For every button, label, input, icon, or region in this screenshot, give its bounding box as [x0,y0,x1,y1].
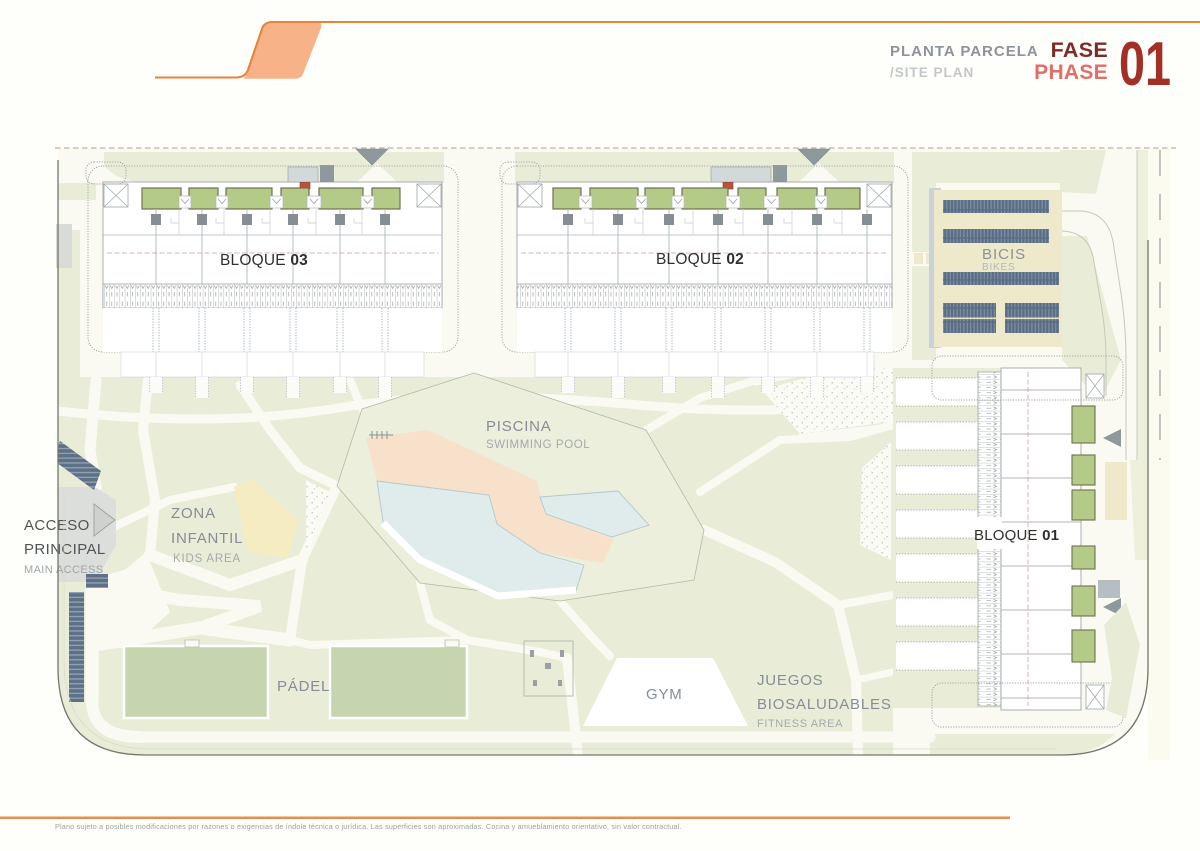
svg-text:PHASE: PHASE [1034,61,1108,84]
svg-text:KIDS AREA: KIDS AREA [173,553,241,565]
svg-text:ZONA: ZONA [171,505,216,522]
svg-text:BIOSALUDABLES: BIOSALUDABLES [757,696,892,713]
svg-text:GYM: GYM [646,686,683,703]
svg-text:FASE: FASE [1051,38,1108,62]
svg-text:BLOQUE 03: BLOQUE 03 [220,252,308,269]
svg-text:BLOQUE 02: BLOQUE 02 [656,251,744,268]
svg-text:BIKES: BIKES [982,262,1015,273]
svg-text:PISCINA: PISCINA [486,418,552,435]
svg-text:BLOQUE 01: BLOQUE 01 [974,527,1059,544]
svg-text:FITNESS AREA: FITNESS AREA [757,718,843,730]
svg-text:JUEGOS: JUEGOS [757,672,823,689]
svg-text:01: 01 [1119,30,1171,99]
svg-text:INFANTIL: INFANTIL [171,530,243,547]
svg-text:/SITE PLAN: /SITE PLAN [890,65,974,80]
svg-text:PÁDEL: PÁDEL [277,678,330,695]
svg-text:SWIMMING POOL: SWIMMING POOL [486,439,590,451]
svg-text:PLANTA PARCELA: PLANTA PARCELA [890,43,1039,60]
svg-text:PRINCIPAL: PRINCIPAL [24,541,106,558]
svg-text:BICIS: BICIS [982,246,1026,263]
svg-text:Plano sujeto a posibles modifi: Plano sujeto a posibles modificaciones p… [55,822,682,831]
svg-text:ACCESO: ACCESO [24,517,90,534]
